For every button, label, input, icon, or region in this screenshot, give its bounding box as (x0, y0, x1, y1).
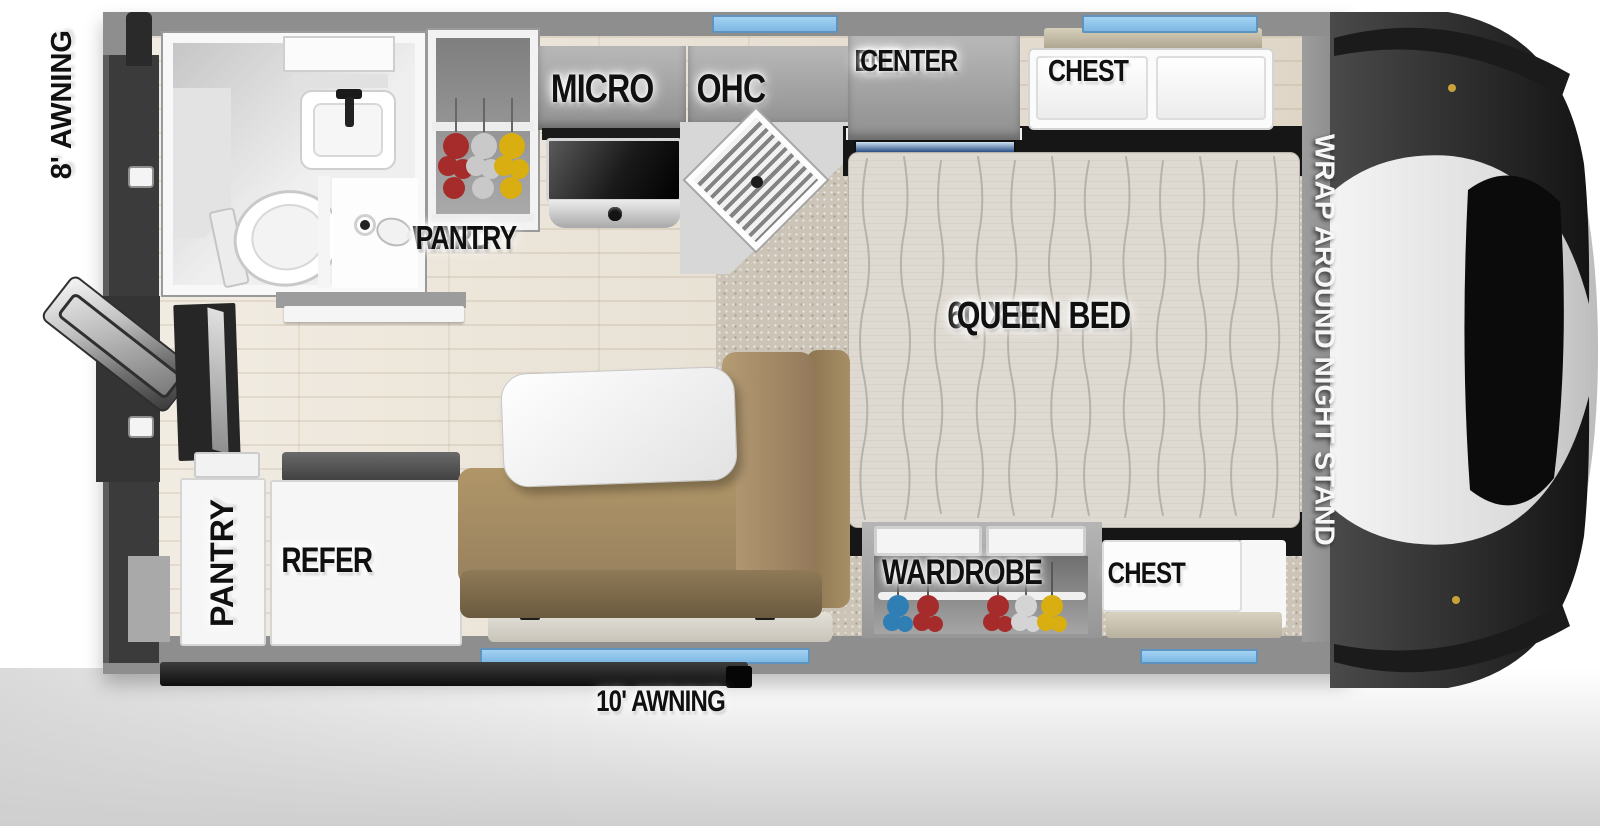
oven-window (546, 138, 682, 202)
wardrobe-door (874, 526, 982, 556)
mattress-texture (849, 153, 1300, 528)
shower-divider-wall (318, 176, 330, 288)
rear-chest-base (1106, 612, 1282, 638)
awning-left-label: 8' AWNING (30, 10, 94, 200)
galley-ledge (284, 306, 464, 322)
rear-pipe (126, 12, 152, 66)
window-front-galley (712, 15, 838, 33)
sofa-base (460, 570, 822, 618)
medicine-shelf (292, 74, 388, 88)
night-stand-label: WRAP AROUND NIGHT STAND (1301, 40, 1348, 640)
door-latch-top (128, 166, 154, 188)
chest-drawer (1156, 56, 1266, 120)
shower-drain-hole (360, 220, 370, 230)
hangers-icon (436, 98, 532, 216)
awning-roller (160, 662, 748, 686)
medicine-cabinet (283, 36, 395, 72)
pantry-label: PANTRY (192, 480, 252, 645)
dinette-table (500, 366, 738, 488)
window-front-bed (1082, 15, 1258, 33)
awning-roller-cap (726, 666, 752, 688)
burner-knob-icon (608, 207, 622, 221)
entry-door-open (173, 303, 240, 461)
wardrobe-door (986, 526, 1086, 556)
queen-bed-mattress (848, 152, 1300, 528)
door-edge-highlight (207, 307, 228, 454)
faucet-stem (345, 97, 354, 127)
kitchen-sink-drain (751, 176, 763, 188)
entry-landing (128, 556, 170, 642)
refrigerator-top (282, 452, 460, 482)
door-latch-bottom (128, 416, 154, 438)
camper-nose-cap (1330, 4, 1598, 696)
sofa-seat-cushion (458, 468, 736, 586)
camper-floorplan: 8' AWNING WARD PANTRY MICRO OHC ENT. CEN… (0, 0, 1600, 826)
stove-burner-panel (549, 200, 681, 228)
window-rear-bed (1140, 649, 1258, 664)
pantry-tray (194, 452, 260, 478)
